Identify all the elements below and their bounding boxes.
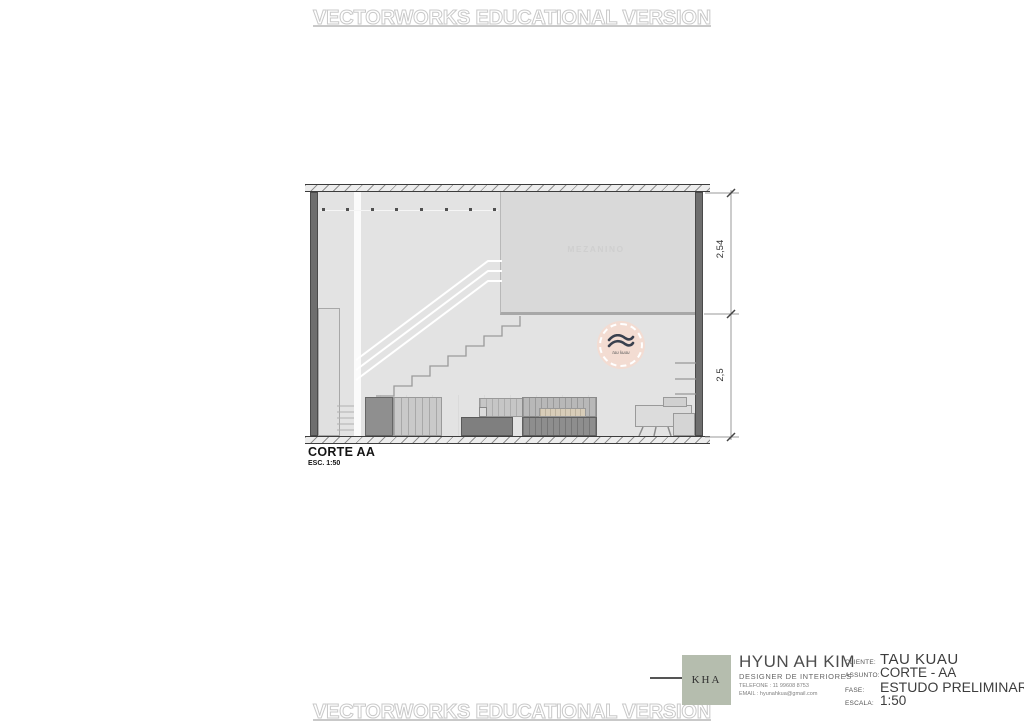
field-label: ASSUNTO:: [845, 672, 880, 679]
tau-kuau-wave-icon: [607, 334, 635, 350]
section-drawing: MEZANINO: [300, 180, 760, 470]
dimension-lower: 2,5: [711, 360, 731, 390]
page: VECTORWORKS EDUCATIONAL VERSION VECTORWO…: [0, 0, 1024, 724]
drawing-title: CORTE AA: [308, 445, 375, 459]
field-label: ESCALA:: [845, 700, 880, 707]
field-fase: FASE: ESTUDO PRELIMINAR: [845, 679, 1024, 693]
designer-name: HYUN AH KIM: [739, 652, 855, 672]
vectorworks-watermark-top: VECTORWORKS EDUCATIONAL VERSION: [0, 7, 1024, 30]
field-value: 1:50: [880, 693, 906, 708]
designer-email: EMAIL : hyunahkua@gmail.com: [739, 691, 817, 697]
designer-phone: TELEFONE : 11 99608 8753: [739, 683, 809, 689]
field-label: CLIENTE:: [845, 659, 880, 666]
titleblock-rule: [650, 677, 682, 679]
kha-monogram-text: KHA: [692, 674, 722, 686]
drawing-scale-note: ESC. 1:50: [308, 460, 375, 467]
field-value: CORTE - AA: [880, 665, 956, 680]
designer-role: DESIGNER DE INTERIORES: [739, 672, 852, 681]
stair-and-dimension-linework: [300, 180, 760, 470]
kha-monogram: KHA: [682, 655, 731, 705]
tau-kuau-logo: tau kuau: [599, 323, 643, 367]
field-escala: ESCALA: 1:50: [845, 693, 1024, 707]
field-cliente: CLIENTE: TAU KUAU: [845, 651, 1024, 665]
dimension-upper: 2,54: [711, 234, 731, 264]
drawing-caption: CORTE AA ESC. 1:50: [308, 445, 375, 467]
field-assunto: ASSUNTO: CORTE - AA: [845, 665, 1024, 679]
project-fields: CLIENTE: TAU KUAU ASSUNTO: CORTE - AA FA…: [845, 651, 1024, 707]
field-label: FASE:: [845, 687, 880, 694]
tau-kuau-logo-text: tau kuau: [612, 351, 629, 356]
